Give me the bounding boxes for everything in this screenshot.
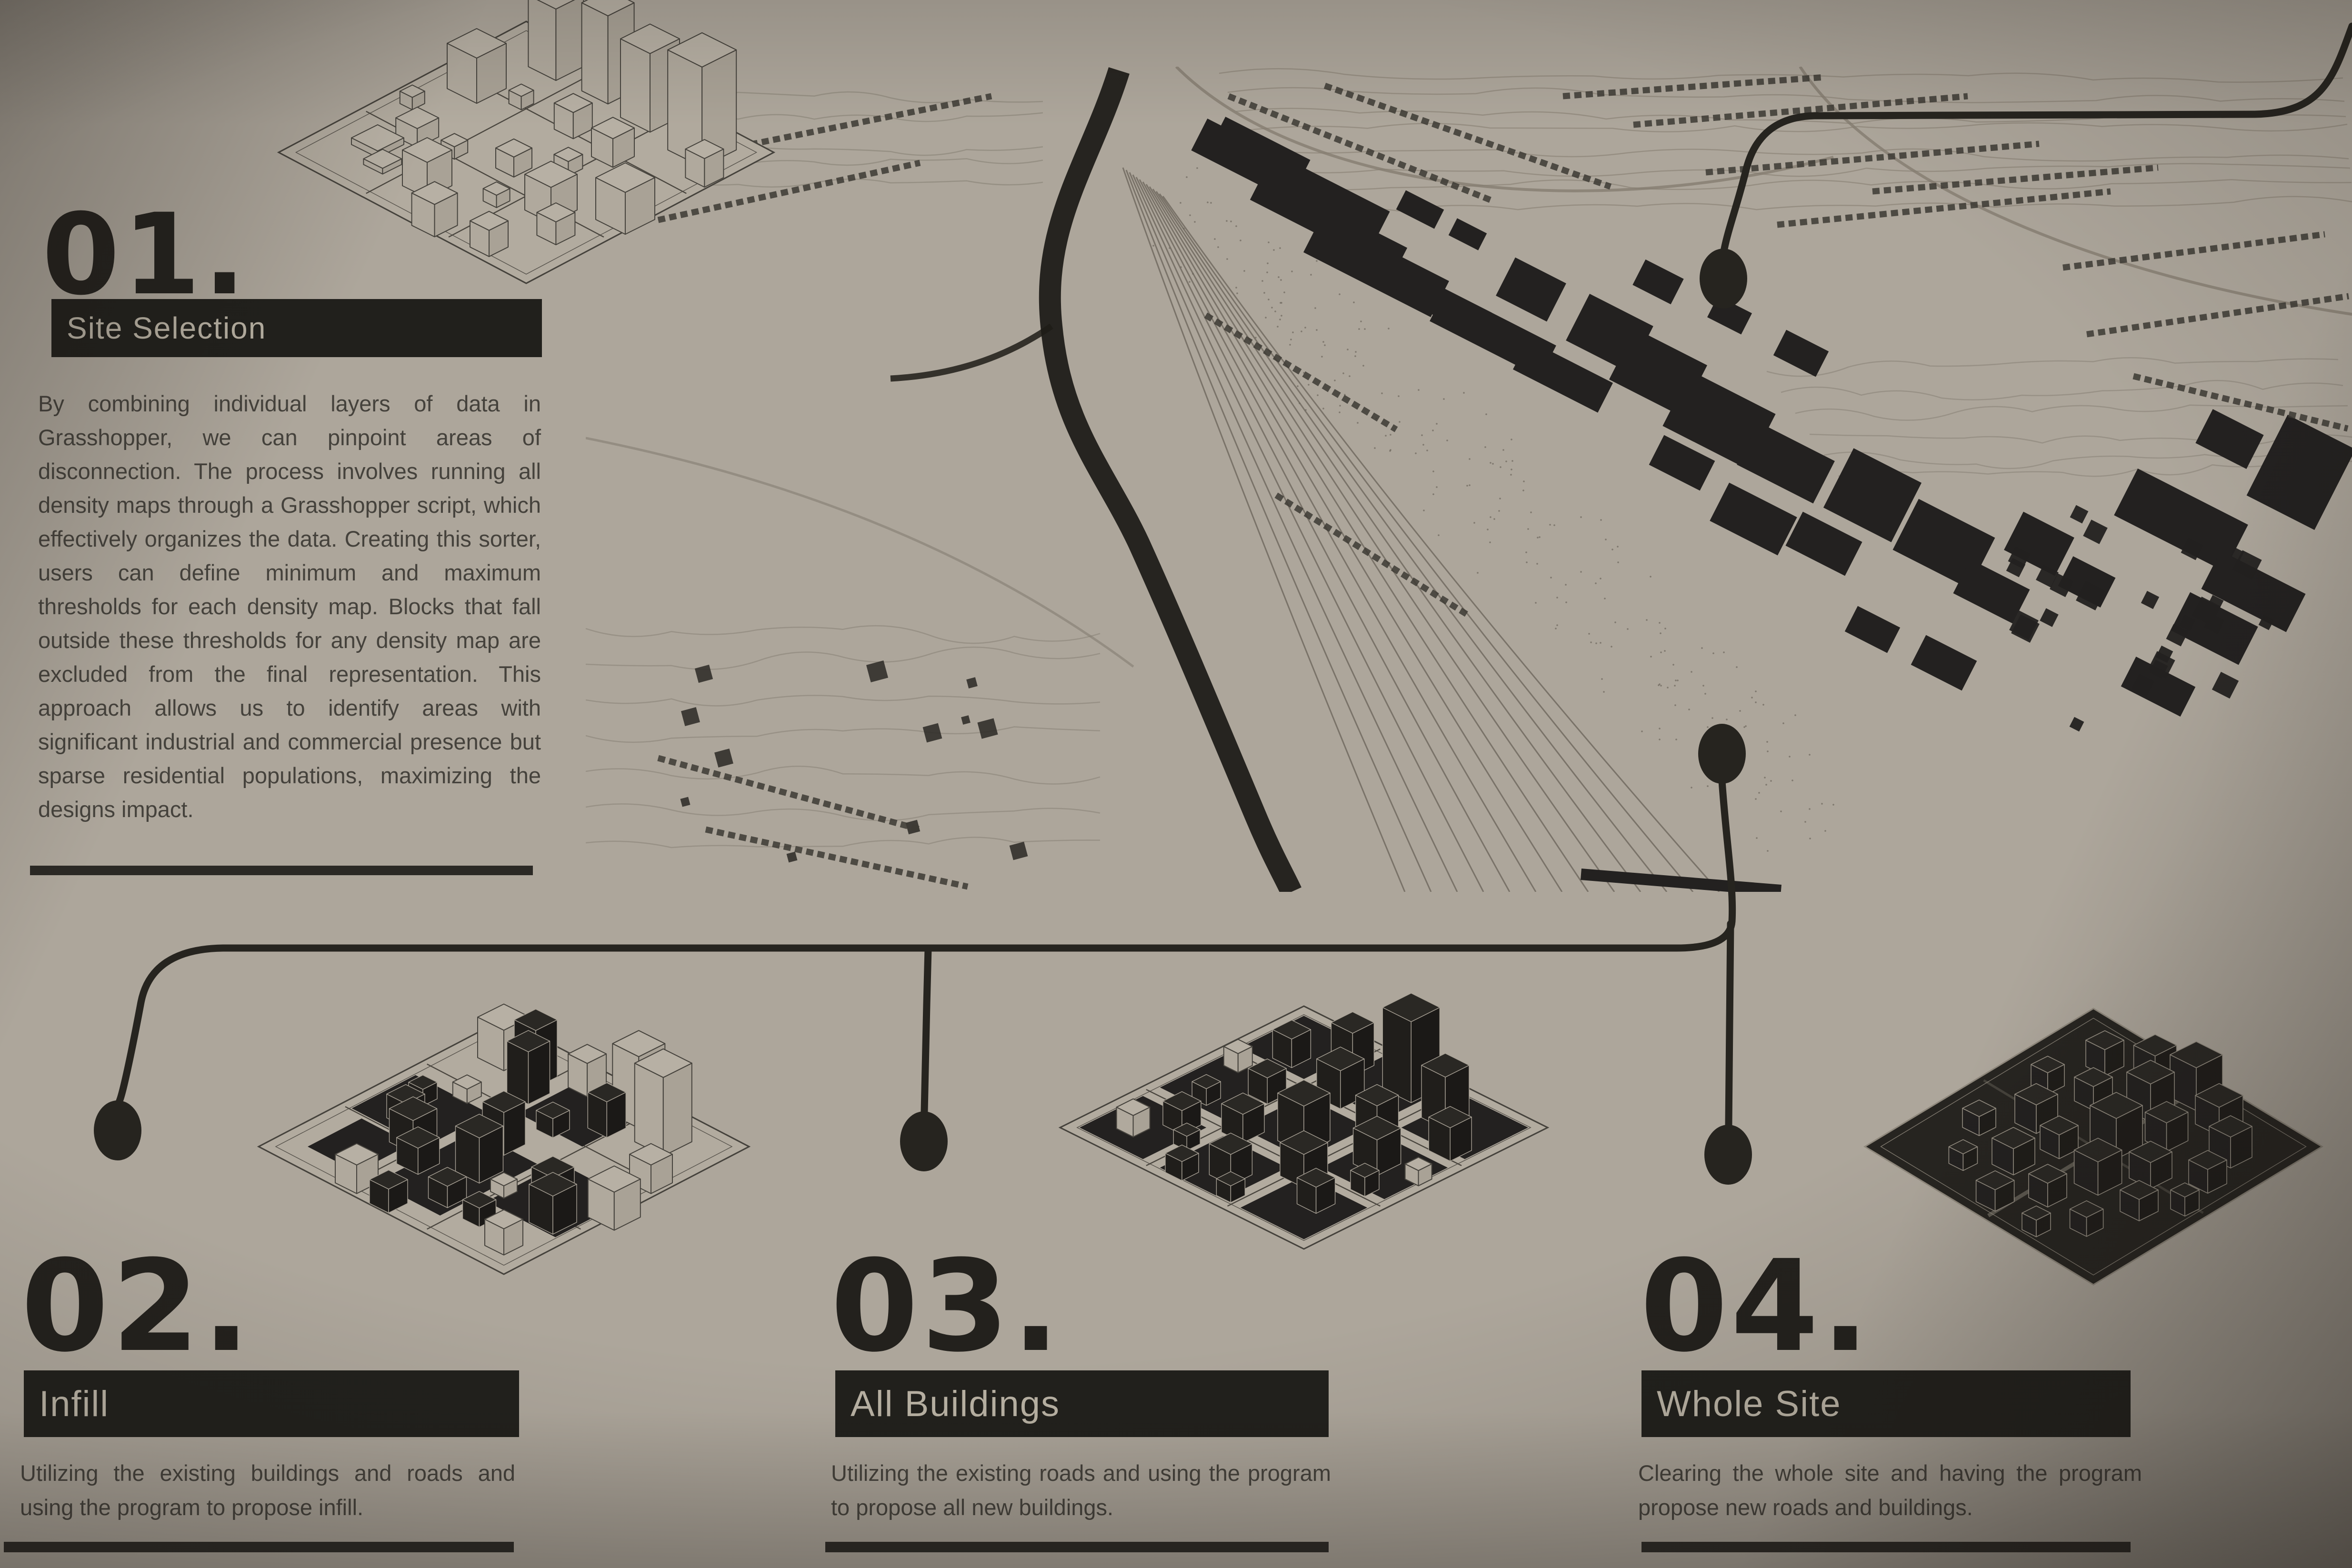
presentation-board: 01. Site Selection By combining individu… bbox=[0, 0, 2352, 1568]
connector-lines bbox=[0, 0, 2352, 1568]
